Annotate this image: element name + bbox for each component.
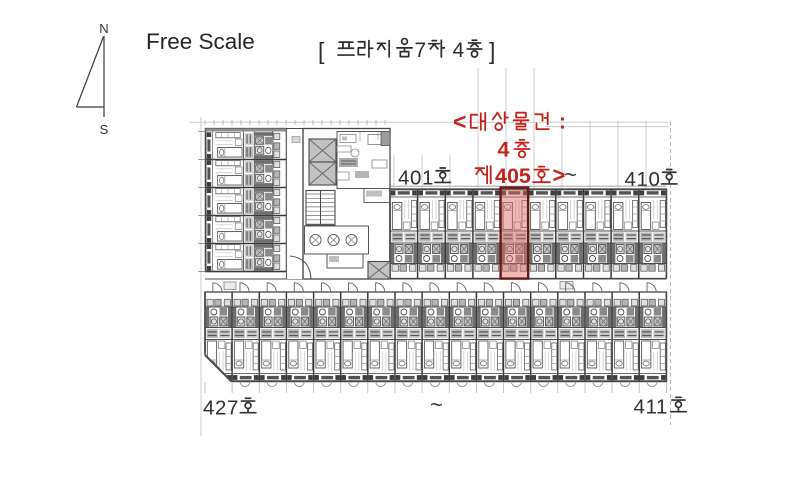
svg-text:4: 4: [498, 138, 510, 162]
svg-text::: :: [559, 111, 566, 134]
svg-text:~: ~: [430, 392, 443, 417]
svg-text:<: <: [453, 109, 466, 135]
svg-text:411: 411: [634, 396, 668, 419]
svg-text:410: 410: [625, 168, 661, 191]
svg-text:N: N: [99, 21, 108, 36]
svg-text:7: 7: [415, 39, 427, 62]
svg-text:4: 4: [453, 39, 465, 62]
svg-text:S: S: [100, 122, 109, 137]
svg-text:427: 427: [203, 397, 239, 420]
svg-text:405: 405: [495, 164, 531, 188]
svg-text:Free Scale: Free Scale: [146, 29, 255, 54]
svg-text:[: [: [318, 38, 325, 64]
svg-text:~: ~: [564, 162, 577, 187]
svg-text:]: ]: [489, 38, 495, 64]
